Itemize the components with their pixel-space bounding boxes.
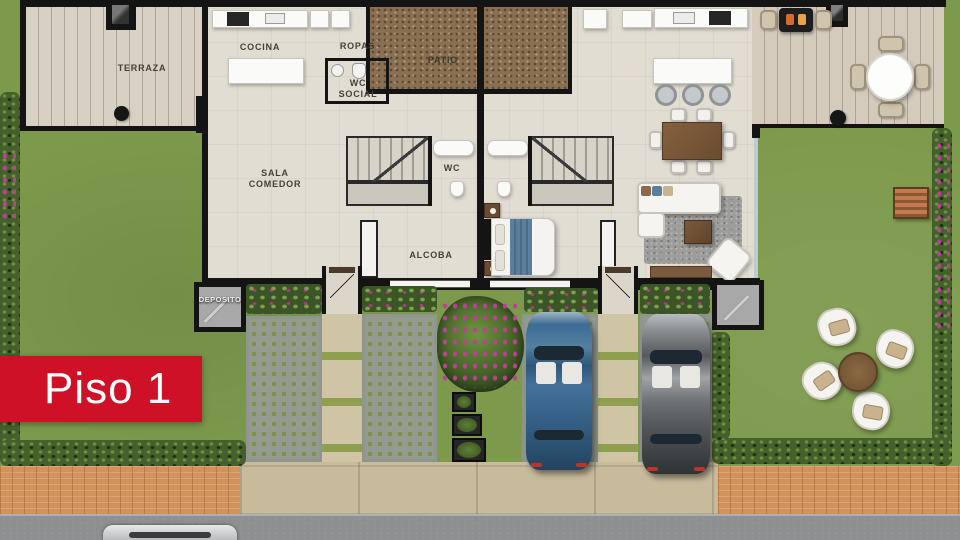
floorplan-scene: TERRAZA PATIO COCINA ROPAS WC SOCIAL WC …	[0, 0, 960, 540]
dining-chair-top-1	[670, 108, 686, 122]
deck-chair-left	[850, 64, 866, 90]
street-car-windshield	[129, 532, 211, 538]
wc-left-wall	[428, 136, 432, 206]
front-door-right	[605, 267, 631, 273]
porch-left	[322, 266, 362, 314]
stepping-path-left	[322, 314, 362, 462]
label-ropas: ROPAS	[330, 41, 385, 52]
brick-sidewalk-right	[718, 466, 960, 515]
deck-round-table	[866, 53, 914, 101]
deck-chair-top	[878, 36, 904, 52]
dining-chair-bottom-2	[696, 160, 712, 174]
laundry-machine-right-1	[583, 9, 607, 29]
pod-cushion-1	[828, 318, 851, 337]
blue-car-taillight-right	[576, 463, 587, 467]
toilet-right	[497, 181, 511, 197]
dining-chair-right	[722, 131, 735, 149]
chimney-vent	[112, 5, 129, 24]
laundry-machine-right-2	[622, 10, 652, 28]
bed-headboard	[484, 219, 491, 260]
paver-field-2	[362, 314, 437, 462]
blue-car-rear-window	[534, 430, 584, 440]
planter-box-2	[452, 414, 482, 436]
deck-planter-dot	[830, 110, 846, 126]
blue-car-seat-1	[536, 362, 556, 384]
dining-chair-top-2	[696, 108, 712, 122]
planter-box-1	[452, 392, 476, 412]
hedge-beside-driveway	[710, 332, 730, 440]
bed	[491, 218, 555, 276]
flowerbed-1	[246, 284, 322, 314]
bathtub-left	[433, 140, 474, 156]
flowerbed-2	[362, 286, 437, 312]
stairs-right-landing	[530, 182, 614, 206]
wc-right-wall	[528, 136, 532, 206]
bed-runner-blue	[510, 219, 532, 275]
bbq-coals-2	[798, 14, 806, 25]
label-wc: WC	[440, 163, 464, 174]
dining-table	[662, 122, 722, 160]
pod-chair-2	[871, 325, 920, 374]
blue-car-seat-2	[562, 362, 582, 384]
garden-bench	[893, 187, 929, 219]
hedge-right-flowers	[934, 140, 950, 330]
glass-wall-right	[754, 138, 758, 280]
floor-banner: Piso 1	[0, 356, 202, 422]
wc-social-sink	[331, 64, 344, 77]
sink-right	[673, 12, 695, 24]
terraza-chimney	[106, 0, 136, 30]
flowerbed-4	[640, 284, 710, 314]
gray-car-seat-1	[652, 366, 672, 388]
entry-doormat	[650, 266, 712, 278]
gray-car-seat-2	[680, 366, 700, 388]
sofa-chaise	[637, 212, 665, 238]
nightstand-top	[484, 203, 500, 218]
dining-chair-left	[649, 131, 662, 149]
laundry-machine-left-1	[310, 10, 329, 28]
stove-left	[227, 12, 249, 26]
door-swing-left	[330, 274, 354, 298]
bed-pillow-1	[495, 224, 505, 245]
column-window	[831, 5, 843, 21]
label-cocina: COCINA	[225, 42, 295, 53]
hedge-left-bottom	[0, 440, 246, 466]
deck-chair-right	[914, 64, 930, 90]
bed-pillow-2	[495, 250, 505, 271]
front-door-left	[329, 267, 355, 273]
deposito-shed-left	[194, 282, 246, 332]
bbq-chair-left	[760, 10, 777, 30]
coffee-table	[684, 220, 712, 244]
gray-car-taillight-left	[647, 467, 658, 471]
label-terraza: TERRAZA	[92, 63, 192, 74]
label-sala-comedor: SALA COMEDOR	[243, 168, 307, 190]
street-parked-car	[103, 525, 237, 540]
exterior-top-wall	[20, 0, 946, 7]
hedge-right-bottom	[712, 438, 952, 464]
bathtub-right	[487, 140, 528, 156]
pod-cushion-2	[885, 341, 909, 361]
wall-left-unit	[202, 7, 208, 280]
flowerbed-3	[524, 288, 598, 312]
paver-field-1	[246, 316, 322, 462]
laundry-machine-left-2	[331, 10, 350, 28]
label-alcoba: ALCOBA	[396, 250, 466, 261]
gray-car-rear-window	[650, 434, 702, 444]
blue-car-windshield	[534, 346, 584, 360]
planter-box-3	[452, 438, 486, 462]
bbq-grill	[779, 8, 813, 32]
label-patio: PATIO	[415, 55, 471, 66]
kitchen-island-right	[653, 58, 732, 84]
garden-round-table	[838, 352, 878, 392]
label-deposito: DEPOSITO	[196, 295, 244, 304]
bar-stool-3	[709, 84, 731, 106]
bbq-coals	[786, 14, 794, 25]
sofa-pillow-tan	[663, 186, 673, 196]
stepping-path-right	[598, 314, 638, 462]
pod-cushion-3	[812, 369, 836, 392]
brick-sidewalk-left	[0, 466, 240, 515]
kitchen-counter-left	[212, 10, 308, 28]
closet-left	[360, 220, 378, 278]
patio-right	[484, 7, 572, 94]
stairs-left-landing	[346, 182, 430, 206]
gray-car	[642, 314, 710, 474]
dining-chair-bottom-1	[670, 160, 686, 174]
pod-cushion-4	[862, 404, 884, 421]
blue-car-taillight-left	[531, 463, 542, 467]
pod-chair-1	[814, 304, 861, 351]
kitchen-island-left	[228, 58, 304, 84]
bbq-chair-right	[815, 10, 832, 30]
sink-left	[265, 13, 285, 24]
door-swing-right	[606, 274, 630, 298]
blue-car	[526, 312, 592, 470]
wc-social-toilet	[352, 63, 366, 79]
bar-stool-2	[682, 84, 704, 106]
broom-right	[723, 295, 749, 321]
wall-party-center	[477, 7, 484, 280]
gray-car-windshield	[650, 350, 702, 364]
bar-stool-1	[655, 84, 677, 106]
center-shrub-flowers	[440, 300, 520, 388]
deck-chair-bottom	[878, 102, 904, 118]
floor-banner-label: Piso 1	[0, 364, 172, 414]
hedge-left-flowers	[0, 150, 16, 220]
pod-chair-4	[849, 389, 893, 433]
sofa-pillow-brown	[641, 186, 651, 196]
porch-right	[598, 266, 638, 314]
kitchen-counter-right	[654, 8, 748, 28]
stove-right	[709, 11, 731, 25]
alcoba-window-right	[490, 280, 570, 288]
deposito-shed-right	[712, 280, 764, 330]
label-wc-social: WC SOCIAL	[336, 78, 380, 100]
sofa-pillow-blue	[652, 186, 662, 196]
toilet-left	[450, 181, 464, 197]
gray-car-taillight-right	[694, 467, 705, 471]
terraza-planter-dot	[114, 106, 129, 121]
